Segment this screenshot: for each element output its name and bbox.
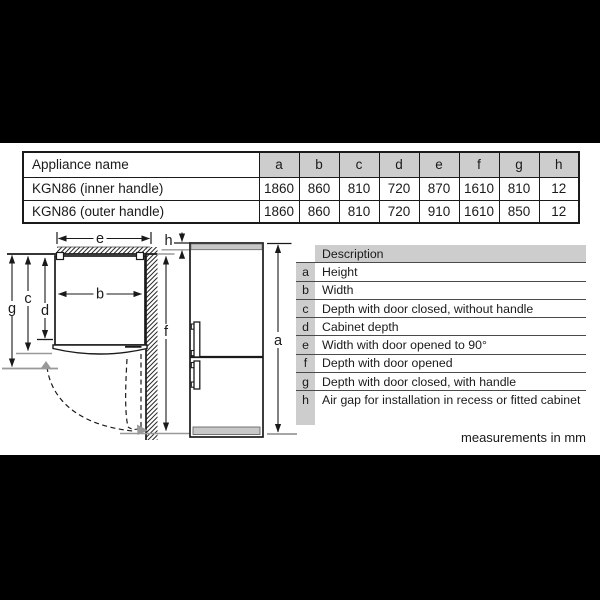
description-row: a Height [296,263,586,281]
description-text: Width with door opened to 90° [315,336,586,353]
dim-label-d: d [41,303,49,319]
value-cell: 1860 [259,200,299,223]
description-key: a [296,263,315,280]
description-row: e Width with door opened to 90° [296,336,586,354]
appliance-name: KGN86 (outer handle) [23,200,259,223]
appliance-name-header: Appliance name [23,152,259,177]
value-cell: 810 [499,177,539,200]
value-cell: 810 [339,200,379,223]
value-cell: 860 [299,200,339,223]
dim-label-c: c [24,291,31,307]
value-cell: 870 [419,177,459,200]
dim-label-a: a [274,333,283,349]
description-key: g [296,373,315,390]
description-column-stub [296,409,315,425]
description-row: h Air gap for installation in recess or … [296,391,586,408]
col-header-c: c [339,152,379,177]
value-cell: 1610 [459,177,499,200]
fridge-front-view: a [190,243,297,437]
description-text: Height [315,263,586,280]
description-row: d Cabinet depth [296,318,586,336]
table-row: KGN86 (inner handle) 1860 860 810 720 87… [23,177,579,200]
value-cell: 910 [419,200,459,223]
door-open-edge-1 [126,359,128,427]
value-cell: 720 [379,177,419,200]
col-header-h: h [539,152,579,177]
wall-hatch-right [146,247,158,440]
description-key: e [296,336,315,353]
door-swing-arc [47,367,133,431]
col-header-e: e [419,152,459,177]
col-header-b: b [299,152,339,177]
description-text: Depth with door closed, with handle [315,373,586,390]
description-title: Description [315,245,586,262]
description-row: f Depth with door opened [296,355,586,373]
value-cell: 1610 [459,200,499,223]
col-header-f: f [459,152,499,177]
dim-label-e: e [96,231,104,247]
value-cell: 860 [299,177,339,200]
appliance-name: KGN86 (inner handle) [23,177,259,200]
description-key: c [296,300,315,317]
content-area: Appliance name a b c d e f g h KGN86 (in… [0,143,600,455]
description-text: Cabinet depth [315,318,586,335]
dim-label-h: h [164,233,172,249]
value-cell: 12 [539,200,579,223]
dimension-f: f [158,254,175,431]
value-cell: 850 [499,200,539,223]
hinge-left [57,253,64,260]
col-header-d: d [379,152,419,177]
description-row: b Width [296,282,586,300]
hinge-right [137,253,144,260]
dimension-diagram: e b c d [0,228,300,450]
description-text: Air gap for installation in recess or fi… [315,391,586,408]
measurements-note: measurements in mm [461,430,586,445]
value-cell: 810 [339,177,379,200]
description-header-row: Description [296,245,586,263]
dimension-g: g [2,256,58,369]
front-body [190,243,263,437]
value-cell: 720 [379,200,419,223]
front-plinth [193,427,260,435]
dimension-d: d [37,258,53,340]
value-cell: 1860 [259,177,299,200]
value-cell: 12 [539,177,579,200]
table-header-row: Appliance name a b c d e f g h [23,152,579,177]
description-row: c Depth with door closed, without handle [296,300,586,318]
dim-label-b: b [96,287,104,303]
description-key: f [296,355,315,372]
description-row: g Depth with door closed, with handle [296,373,586,391]
col-header-g: g [499,152,539,177]
top-view-drawing: e b c d [2,231,191,440]
description-key: d [296,318,315,335]
dim-label-g: g [8,301,16,317]
description-key-header [296,245,315,262]
description-text: Width [315,282,586,299]
front-top-strip [191,244,262,250]
description-text: Depth with door opened [315,355,586,372]
dimension-a: a [267,244,297,435]
description-key: h [296,391,315,408]
col-header-a: a [259,152,299,177]
table-row: KGN86 (outer handle) 1860 860 810 720 91… [23,200,579,223]
dimension-e: e [57,231,151,247]
description-text: Depth with door closed, without handle [315,300,586,317]
description-key: b [296,282,315,299]
dimensions-table: Appliance name a b c d e f g h KGN86 (in… [22,151,580,224]
description-table: Description a Height b Width c Depth wit… [296,245,586,425]
